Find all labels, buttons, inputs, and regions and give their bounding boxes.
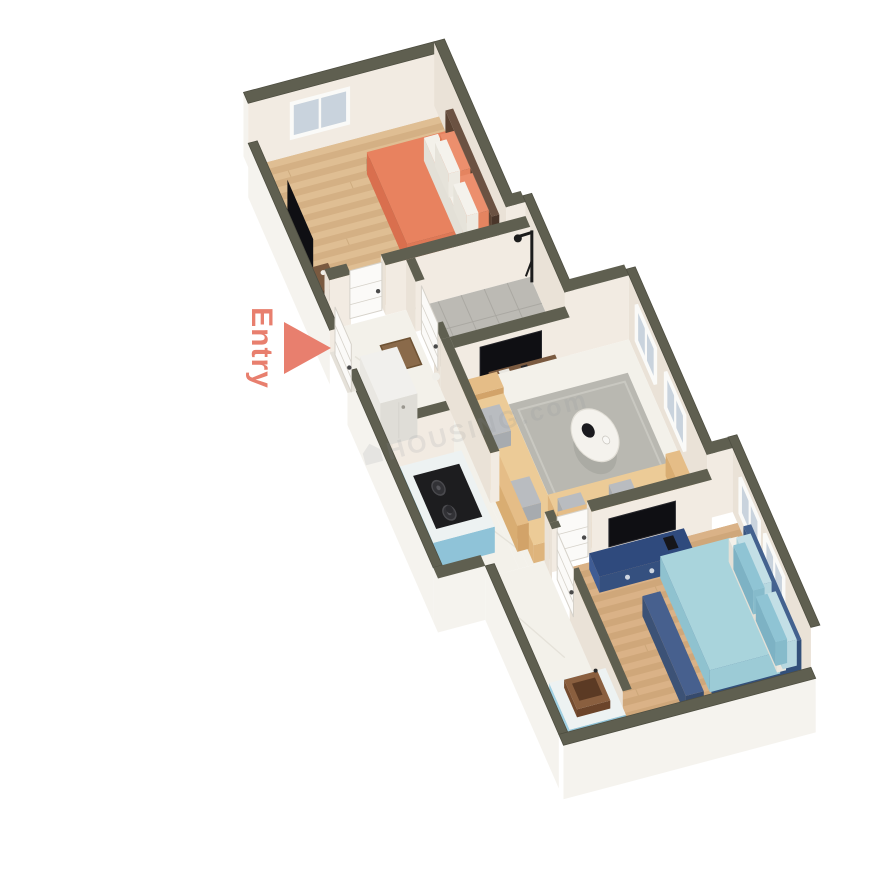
entry-label: Entry bbox=[245, 307, 278, 389]
floor-plan-3d-render: HOUSING.comEntry bbox=[0, 0, 870, 870]
floor-plan-canvas: HOUSING.comEntry bbox=[0, 0, 870, 870]
